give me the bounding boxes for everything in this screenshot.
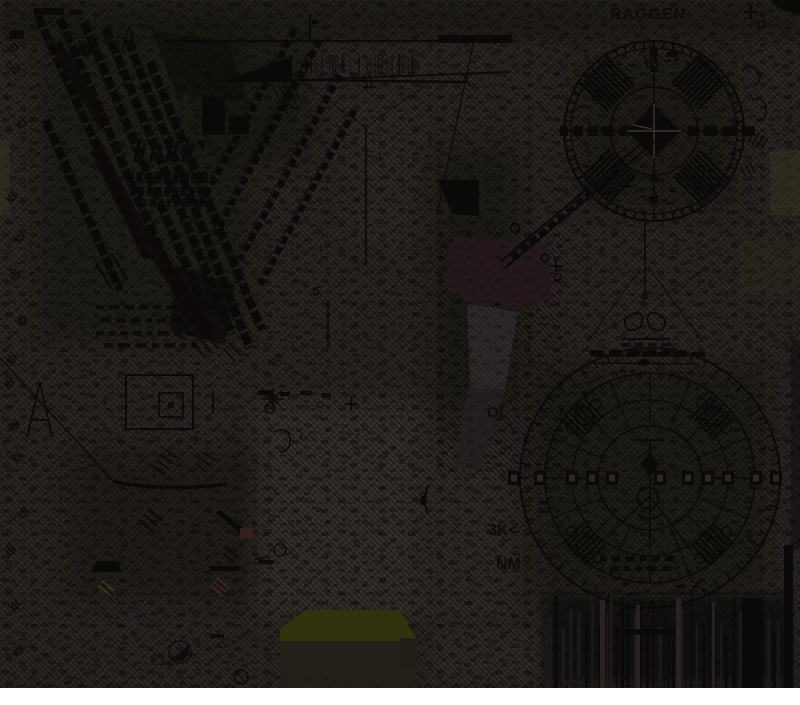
svg-text:RAGGEN: RAGGEN [610,6,686,23]
svg-text:L12: L12 [150,652,174,668]
svg-text:NM: NM [496,556,521,573]
svg-text:OL: OL [487,404,508,421]
svg-text:3K<: 3K< [488,522,518,539]
